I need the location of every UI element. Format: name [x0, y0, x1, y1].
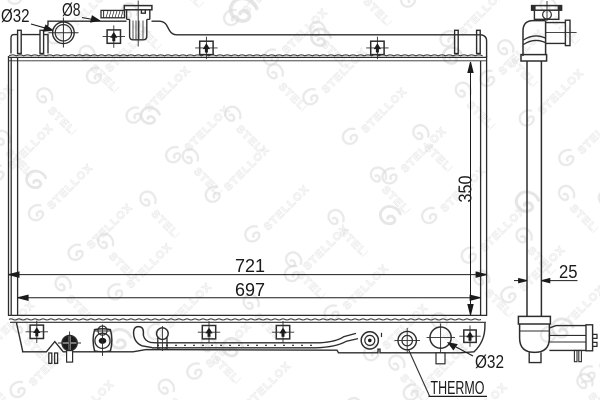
- svg-text:350: 350: [455, 176, 475, 203]
- svg-text:Ø32: Ø32: [475, 352, 504, 372]
- svg-text:Ø32: Ø32: [1, 6, 30, 26]
- svg-text:721: 721: [235, 256, 265, 276]
- svg-text:THERMO: THERMO: [431, 378, 485, 398]
- svg-text:697: 697: [235, 280, 265, 300]
- svg-text:25: 25: [559, 262, 578, 282]
- svg-text:Ø8: Ø8: [62, 0, 81, 20]
